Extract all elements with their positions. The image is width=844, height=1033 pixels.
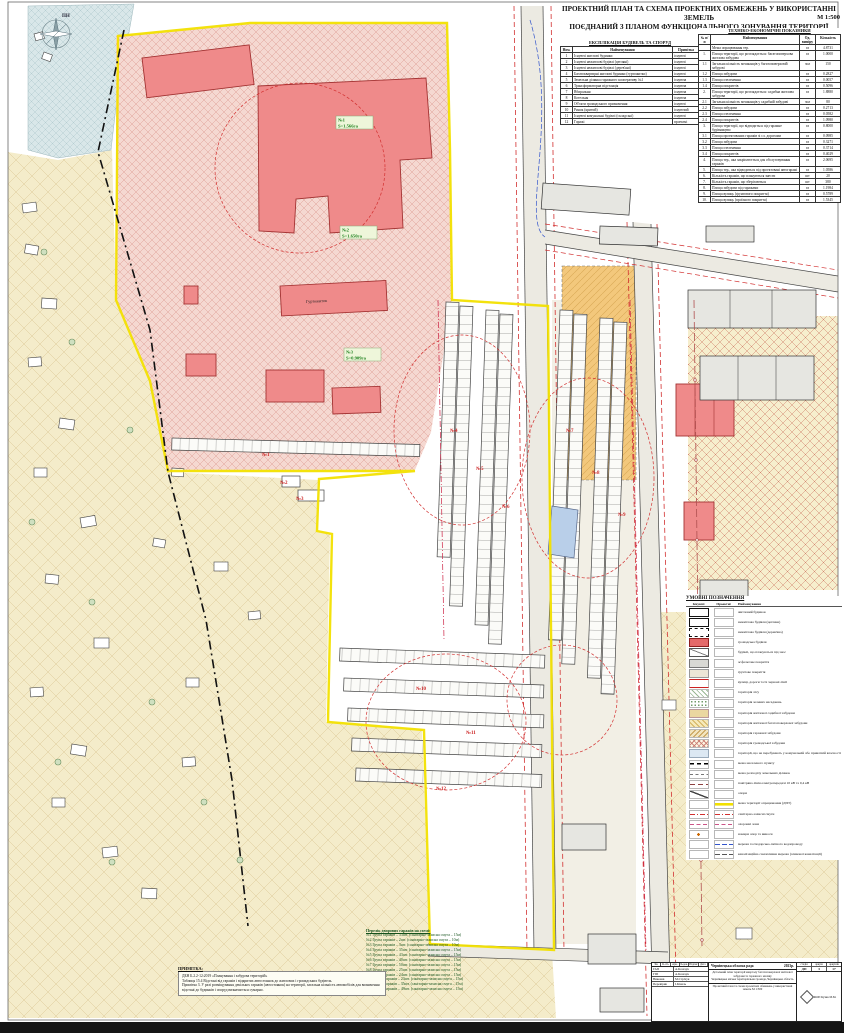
legend-swatch-projected [714, 608, 734, 617]
table-row: 12 Гаражі проектні [561, 119, 700, 125]
legend-item-label: межа населеного пункту [736, 762, 842, 766]
legend-item-label: території, що не перебувають у комунальн… [736, 752, 842, 756]
legend-swatch-projected [714, 659, 734, 668]
legend-swatch-projected [714, 638, 734, 647]
zone2-area: S=1.650га [342, 233, 363, 238]
legend-swatch-projected [714, 669, 734, 678]
garage-label: №2 [280, 480, 288, 486]
role-name: А.Козачук [674, 967, 708, 971]
garage-label: №5 [476, 466, 484, 472]
garage-label: №11 [466, 730, 476, 736]
zone3-area: S=0.909га [346, 355, 367, 360]
indicators-title: ТЕХНІКО-ЕКОНОМІЧНІ ПОКАЗНИКИ [698, 28, 841, 33]
role-title: Перевірив [652, 982, 674, 986]
role-name: І.Кіналь [674, 982, 708, 986]
legend-swatch-existing [689, 810, 709, 819]
legend-swatch-existing [689, 729, 709, 738]
table-row: 4. Площа тер., яка закріплюється для обс… [699, 157, 841, 167]
legend-item-label: територія зелених насаджень [736, 701, 842, 705]
stamp-role-row: Перевірив І.Кіналь [652, 982, 708, 987]
garage-label: №10 [416, 686, 427, 692]
table-row: 2. Площа території, що розглядається: са… [699, 89, 841, 99]
sheets-value: 17 [827, 967, 841, 971]
legend-swatch-projected [714, 800, 734, 809]
garage-label: №4 [450, 428, 458, 434]
legend-item: межа розподілу земельних ділянок [686, 770, 842, 779]
table-row: 1.1 Загальна кількість мешканців у багат… [699, 61, 841, 71]
legend-item-label: територія громадської забудови [736, 742, 842, 746]
legend-item-label: будівлі, що плануються під знос [736, 651, 842, 655]
garage-label: №9 [618, 512, 626, 518]
legend-item-label: асфальтове покриття [736, 661, 842, 665]
col-header: Кількість [816, 35, 841, 45]
legend-item-label: житловий будинок [736, 611, 842, 615]
stamp-signatures: Зм. К-сть Арк. №док. Підпис Дата ГАП А.К… [652, 963, 709, 1021]
garage-label: №12 [436, 786, 447, 792]
legend-swatch-projected [714, 729, 734, 738]
explication-title: ЕКСПЛІКАЦІЯ БУДІВЕЛЬ ТА СПОРУД [560, 40, 700, 45]
legend-panel: УМОВНІ ПОЗНАЧЕННЯ Існуючі Проектні Найме… [686, 596, 842, 860]
legend-item: територія зелених насаджень [686, 699, 842, 708]
legend-item-label: ґрунтове покриття [736, 671, 842, 675]
stamp-organization: Чернівецька обласна рада [711, 964, 754, 968]
note-line: Примітка 3. У разі розміщування декілько… [182, 983, 382, 992]
legend-swatch-projected [714, 770, 734, 779]
legend-item-label: номери опор та виноси [736, 833, 842, 837]
legend-swatch-projected [714, 709, 734, 718]
legend-col-existing: Існуючі [686, 602, 711, 606]
legend-item: мережа господарсько-питного водопроводу [686, 840, 842, 849]
legend-swatch-existing [689, 780, 709, 789]
legend-item-label: межа розподілу земельних ділянок [736, 772, 842, 776]
legend-title: УМОВНІ ПОЗНАЧЕННЯ [686, 596, 842, 601]
legend-item: нежитлова будівля (цегляна) [686, 618, 842, 627]
garage-label: №8 [592, 470, 600, 476]
garage-label: №6 [502, 504, 510, 510]
legend-swatch-existing [689, 719, 709, 728]
garage-label: №3 [296, 496, 304, 502]
legend-swatch-projected [714, 830, 734, 839]
legend-swatch-projected [714, 719, 734, 728]
legend-swatch-existing [689, 659, 709, 668]
legend-swatch-existing [689, 800, 709, 809]
legend-swatch-existing [689, 709, 709, 718]
legend-swatch-projected [714, 689, 734, 698]
legend-swatch-existing [689, 739, 709, 748]
legend-swatch-projected [714, 820, 734, 829]
legend-item-label: територія житлової садибної забудови [736, 712, 842, 716]
legend-swatch-projected [714, 840, 734, 849]
legend-swatch-existing [689, 749, 709, 758]
legend-swatch-existing [689, 628, 709, 637]
legend-item: територія житлової садибної забудови [686, 709, 842, 718]
legend-swatch-projected [714, 679, 734, 688]
legend-swatch-projected [714, 780, 734, 789]
firm-name: ФОП Кузик М.М. [814, 995, 837, 999]
indicators-body: Межа опрацювання тер. га 4.8731 1. Площа… [699, 45, 841, 203]
note-block: ПРИМІТКА: ДБН Б.2.2-12:2019 «Планування … [178, 966, 386, 996]
legend-item: територія громадської забудови [686, 739, 842, 748]
legend-swatch-projected [714, 648, 734, 657]
legend-item: території, що не перебувають у комунальн… [686, 749, 842, 758]
indicators-table: ТЕХНІКО-ЕКОНОМІЧНІ ПОКАЗНИКИ № п/п Найме… [698, 28, 841, 203]
col-header: Од. виміру [800, 35, 816, 45]
legend-item: територія житлової багатоповерхової забу… [686, 719, 842, 728]
col-header: № п/п [699, 35, 711, 45]
table-row: 3. Площа території, що відводиться під г… [699, 123, 841, 133]
legend-item: номери опор та виноси [686, 830, 842, 839]
zone1-area: S=1.566га [338, 123, 359, 128]
scale-label: М 1:500 [817, 14, 840, 22]
legend-swatch-existing [689, 679, 709, 688]
legend-swatch-existing [689, 608, 709, 617]
col-header: Найменування [711, 35, 800, 45]
legend-item: нежитлова будівля (дерев'яна) [686, 628, 842, 637]
legend-swatch-existing [689, 830, 709, 839]
legend-swatch-projected [714, 850, 734, 859]
note-box: ДБН Б.2.2-12:2019 «Планування і забудова… [178, 971, 386, 996]
legend-swatch-existing [689, 760, 709, 769]
explication-body: 1 Існуючі житлові будинки існуючі 2 Існу… [561, 53, 700, 125]
legend-item-label: територія лісу [736, 691, 842, 695]
garage-label: №1 [262, 452, 270, 458]
legend-swatch-projected [714, 790, 734, 799]
stamp-sheet-caption: Проектний план та схема проектних обмеже… [709, 984, 796, 1021]
legend-item-label: територія гаражної забудови [736, 732, 842, 736]
legend-item: каналізаційна самопливна мережа (зливово… [686, 850, 842, 859]
legend-item-label: територія житлової багатоповерхової забу… [736, 722, 842, 726]
bottom-bar [0, 1022, 844, 1033]
legend-item-label: каналізаційна самопливна мережа (зливово… [736, 853, 842, 857]
table-row: 10. Площа вулиць (проїзного покриття) га… [699, 197, 841, 203]
sheet-value: 3 [812, 967, 826, 971]
legend-item: повітряна лінія електропередачі 10 кВ та… [686, 780, 842, 789]
legend-item: територія лісу [686, 689, 842, 698]
title-line-1: ПРОЕКТНИЙ ПЛАН ТА СХЕМА ПРОЕКТНИХ ОБМЕЖЕ… [562, 5, 836, 22]
garage-label: №7 [566, 428, 574, 434]
legend-swatch-projected [714, 749, 734, 758]
legend-swatch-existing [689, 689, 709, 698]
legend-item: будівлі, що плануються під знос [686, 648, 842, 657]
legend-col-projected: Проектні [711, 602, 736, 606]
legend-item-label: вулиці, дороги та їх червоні лінії [736, 681, 842, 685]
legend-item-label: громадська будівля [736, 641, 842, 645]
garage-list-item: №12 Група гаражів – 49шт. (санітарно-зах… [366, 987, 556, 992]
stamp-project-info: Чернівецька обласна рада 2023р. Детальни… [709, 963, 797, 1021]
legend-swatch-existing [689, 618, 709, 627]
legend-item: ґрунтове покриття [686, 669, 842, 678]
legend-swatch-existing [689, 699, 709, 708]
stage-value: ДП [797, 967, 811, 971]
firm-logo-icon [800, 989, 814, 1003]
legend-swatch-existing [689, 648, 709, 657]
legend-item-label: нежитлова будівля (цегляна) [736, 621, 842, 625]
role-title: ГІП [652, 972, 674, 976]
legend-item-label: межа території опрацювання (ДПТ) [736, 802, 842, 806]
compass-north-label: ПН [62, 14, 70, 19]
legend-swatch-projected [714, 760, 734, 769]
legend-item: територія гаражної забудови [686, 729, 842, 738]
legend-item: житловий будинок [686, 608, 842, 617]
legend-item-label: опори [736, 792, 842, 796]
drawing-sheet: ПН №1 S=1.566га №2 S=1.650га №3 S=0.909г… [0, 0, 844, 1033]
legend-item: вулиці, дороги та їх червоні лінії [686, 679, 842, 688]
table-row: 1. Площа території, що розглядається: ба… [699, 51, 841, 61]
role-title: ГАП [652, 967, 674, 971]
building-projected-blue [548, 506, 578, 558]
zone3-number: №3 [346, 350, 354, 355]
explication-table: ЕКСПЛІКАЦІЯ БУДІВЕЛЬ ТА СПОРУД Ном. Найм… [560, 40, 700, 125]
legend-item-label: охоронні зони [736, 823, 842, 827]
legend-item-label: повітряна лінія електропередачі 10 кВ та… [736, 782, 842, 786]
legend-swatch-existing [689, 820, 709, 829]
legend-swatch-existing [689, 850, 709, 859]
legend-swatch-existing [689, 770, 709, 779]
zone2-number: №2 [342, 228, 350, 233]
legend-item-label: санітарно-захисні смуги [736, 813, 842, 817]
legend-swatch-existing [689, 669, 709, 678]
role-name: А.Козачук [674, 972, 708, 976]
legend-swatch-existing [689, 790, 709, 799]
legend-col-name: Найменування [736, 602, 842, 606]
legend-item: охоронні зони [686, 820, 842, 829]
legend-swatch-projected [714, 810, 734, 819]
legend-item: санітарно-захисні смуги [686, 810, 842, 819]
legend-column-headers: Існуючі Проектні Найменування [686, 602, 842, 607]
legend-swatch-projected [714, 628, 734, 637]
stamp-stage-block: стадія ДП аркуш 3 аркушів 17 ФОП Кузик М… [797, 963, 841, 1021]
stamp-project-line2: Чернівецька міська територіальна громада… [711, 977, 793, 981]
title-stamp: Зм. К-сть Арк. №док. Підпис Дата ГАП А.К… [651, 962, 842, 1022]
legend-item: громадська будівля [686, 638, 842, 647]
stamp-year: 2023р. [784, 964, 794, 968]
legend-swatch-projected [714, 618, 734, 627]
role-title: Виконав [652, 977, 674, 981]
legend-items: житловий будинок нежитлова будівля (цегл… [686, 608, 842, 859]
legend-swatch-existing [689, 840, 709, 849]
legend-item: асфальтове покриття [686, 659, 842, 668]
legend-item: межа території опрацювання (ДПТ) [686, 800, 842, 809]
legend-item-label: нежитлова будівля (дерев'яна) [736, 631, 842, 635]
legend-swatch-projected [714, 699, 734, 708]
garage-list: Перелік дворових гаражів на схемі: №1 Гр… [366, 928, 556, 992]
role-name: М.Стрічук [674, 977, 708, 981]
legend-item: опори [686, 790, 842, 799]
legend-swatch-projected [714, 739, 734, 748]
legend-item-label: мережа господарсько-питного водопроводу [736, 843, 842, 847]
legend-item: межа населеного пункту [686, 760, 842, 769]
legend-swatch-existing [689, 638, 709, 647]
zone1-number: №1 [338, 118, 346, 123]
